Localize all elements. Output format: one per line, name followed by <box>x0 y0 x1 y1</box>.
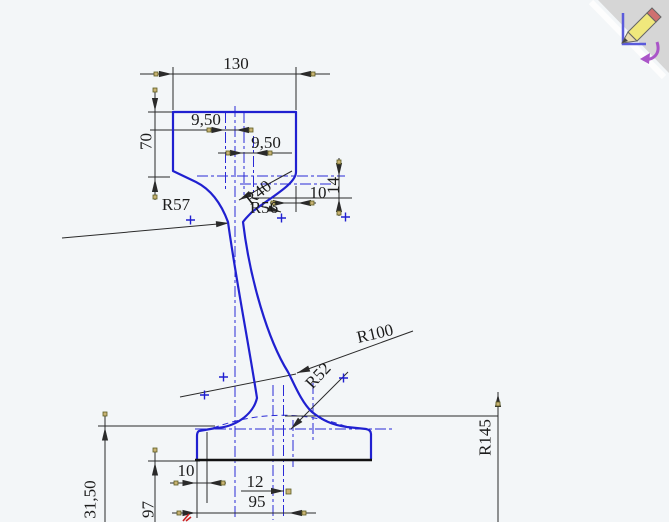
dim-label-base-edge-offset[interactable]: 10 <box>174 462 198 479</box>
dim-label-head-height[interactable]: 70 <box>138 130 155 154</box>
sketch-viewport[interactable]: 130 70 9,50 9,50 10 14 R57 R40 R56 R100 … <box>0 0 669 522</box>
sketch-canvas[interactable] <box>0 0 669 522</box>
dim-label-base-height-mid[interactable]: 97 <box>140 498 157 522</box>
radius-label-right-fillet-b[interactable]: R56 <box>247 199 281 216</box>
dim-label-head-offset-right[interactable]: 9,50 <box>247 134 285 151</box>
origin-marker <box>183 514 191 521</box>
confirmation-corner[interactable] <box>591 0 669 77</box>
radius-label-base-arc[interactable]: R145 <box>477 415 494 461</box>
dim-label-head-side-height[interactable]: 14 <box>325 174 342 198</box>
dim-label-base-height-left[interactable]: 31,50 <box>82 477 99 522</box>
construction-lines <box>195 106 392 520</box>
radius-label-left-fillet[interactable]: R57 <box>158 196 194 213</box>
dim-label-web-base-width[interactable]: 12 <box>243 473 267 490</box>
dim-label-base-width[interactable]: 95 <box>245 493 269 510</box>
dim-label-top-width[interactable]: 130 <box>216 55 256 72</box>
dimension-handles[interactable] <box>103 72 500 515</box>
dim-label-head-offset-left[interactable]: 9,50 <box>187 111 225 128</box>
